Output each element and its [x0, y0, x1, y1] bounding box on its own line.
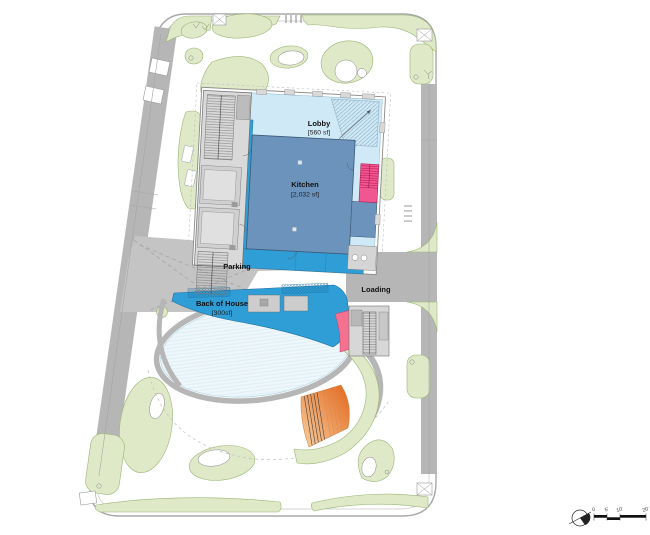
scale-label-10: 10': [616, 506, 624, 513]
scale-label-0: 0: [592, 507, 596, 514]
building: [186, 83, 391, 303]
loading-label: Loading: [361, 285, 391, 294]
site-plan: Lobby [560 sf] Kitchen [2,032 sf] Parkin…: [0, 0, 650, 535]
lobby-area-label: [560 sf]: [308, 130, 330, 137]
north-arrow-icon: [569, 510, 591, 526]
lobby-label: Lobby: [308, 119, 331, 128]
site-plan-drawing: Lobby [560 sf] Kitchen [2,032 sf] Parkin…: [0, 0, 650, 535]
back-of-house-label: Back of House: [196, 299, 248, 308]
scale-bar: 0 5' 10' 20': [592, 506, 650, 520]
back-of-house-area-label: [300sf]: [212, 310, 233, 317]
kitchen-label: Kitchen: [291, 180, 319, 189]
scale-label-20: 20': [642, 506, 650, 513]
scale-label-5: 5': [604, 507, 609, 514]
kitchen-area-label: [2,032 sf]: [291, 192, 319, 199]
pink-stair: [359, 164, 379, 203]
parking-label: Parking: [223, 262, 251, 271]
lower-stair-core: [349, 306, 389, 356]
